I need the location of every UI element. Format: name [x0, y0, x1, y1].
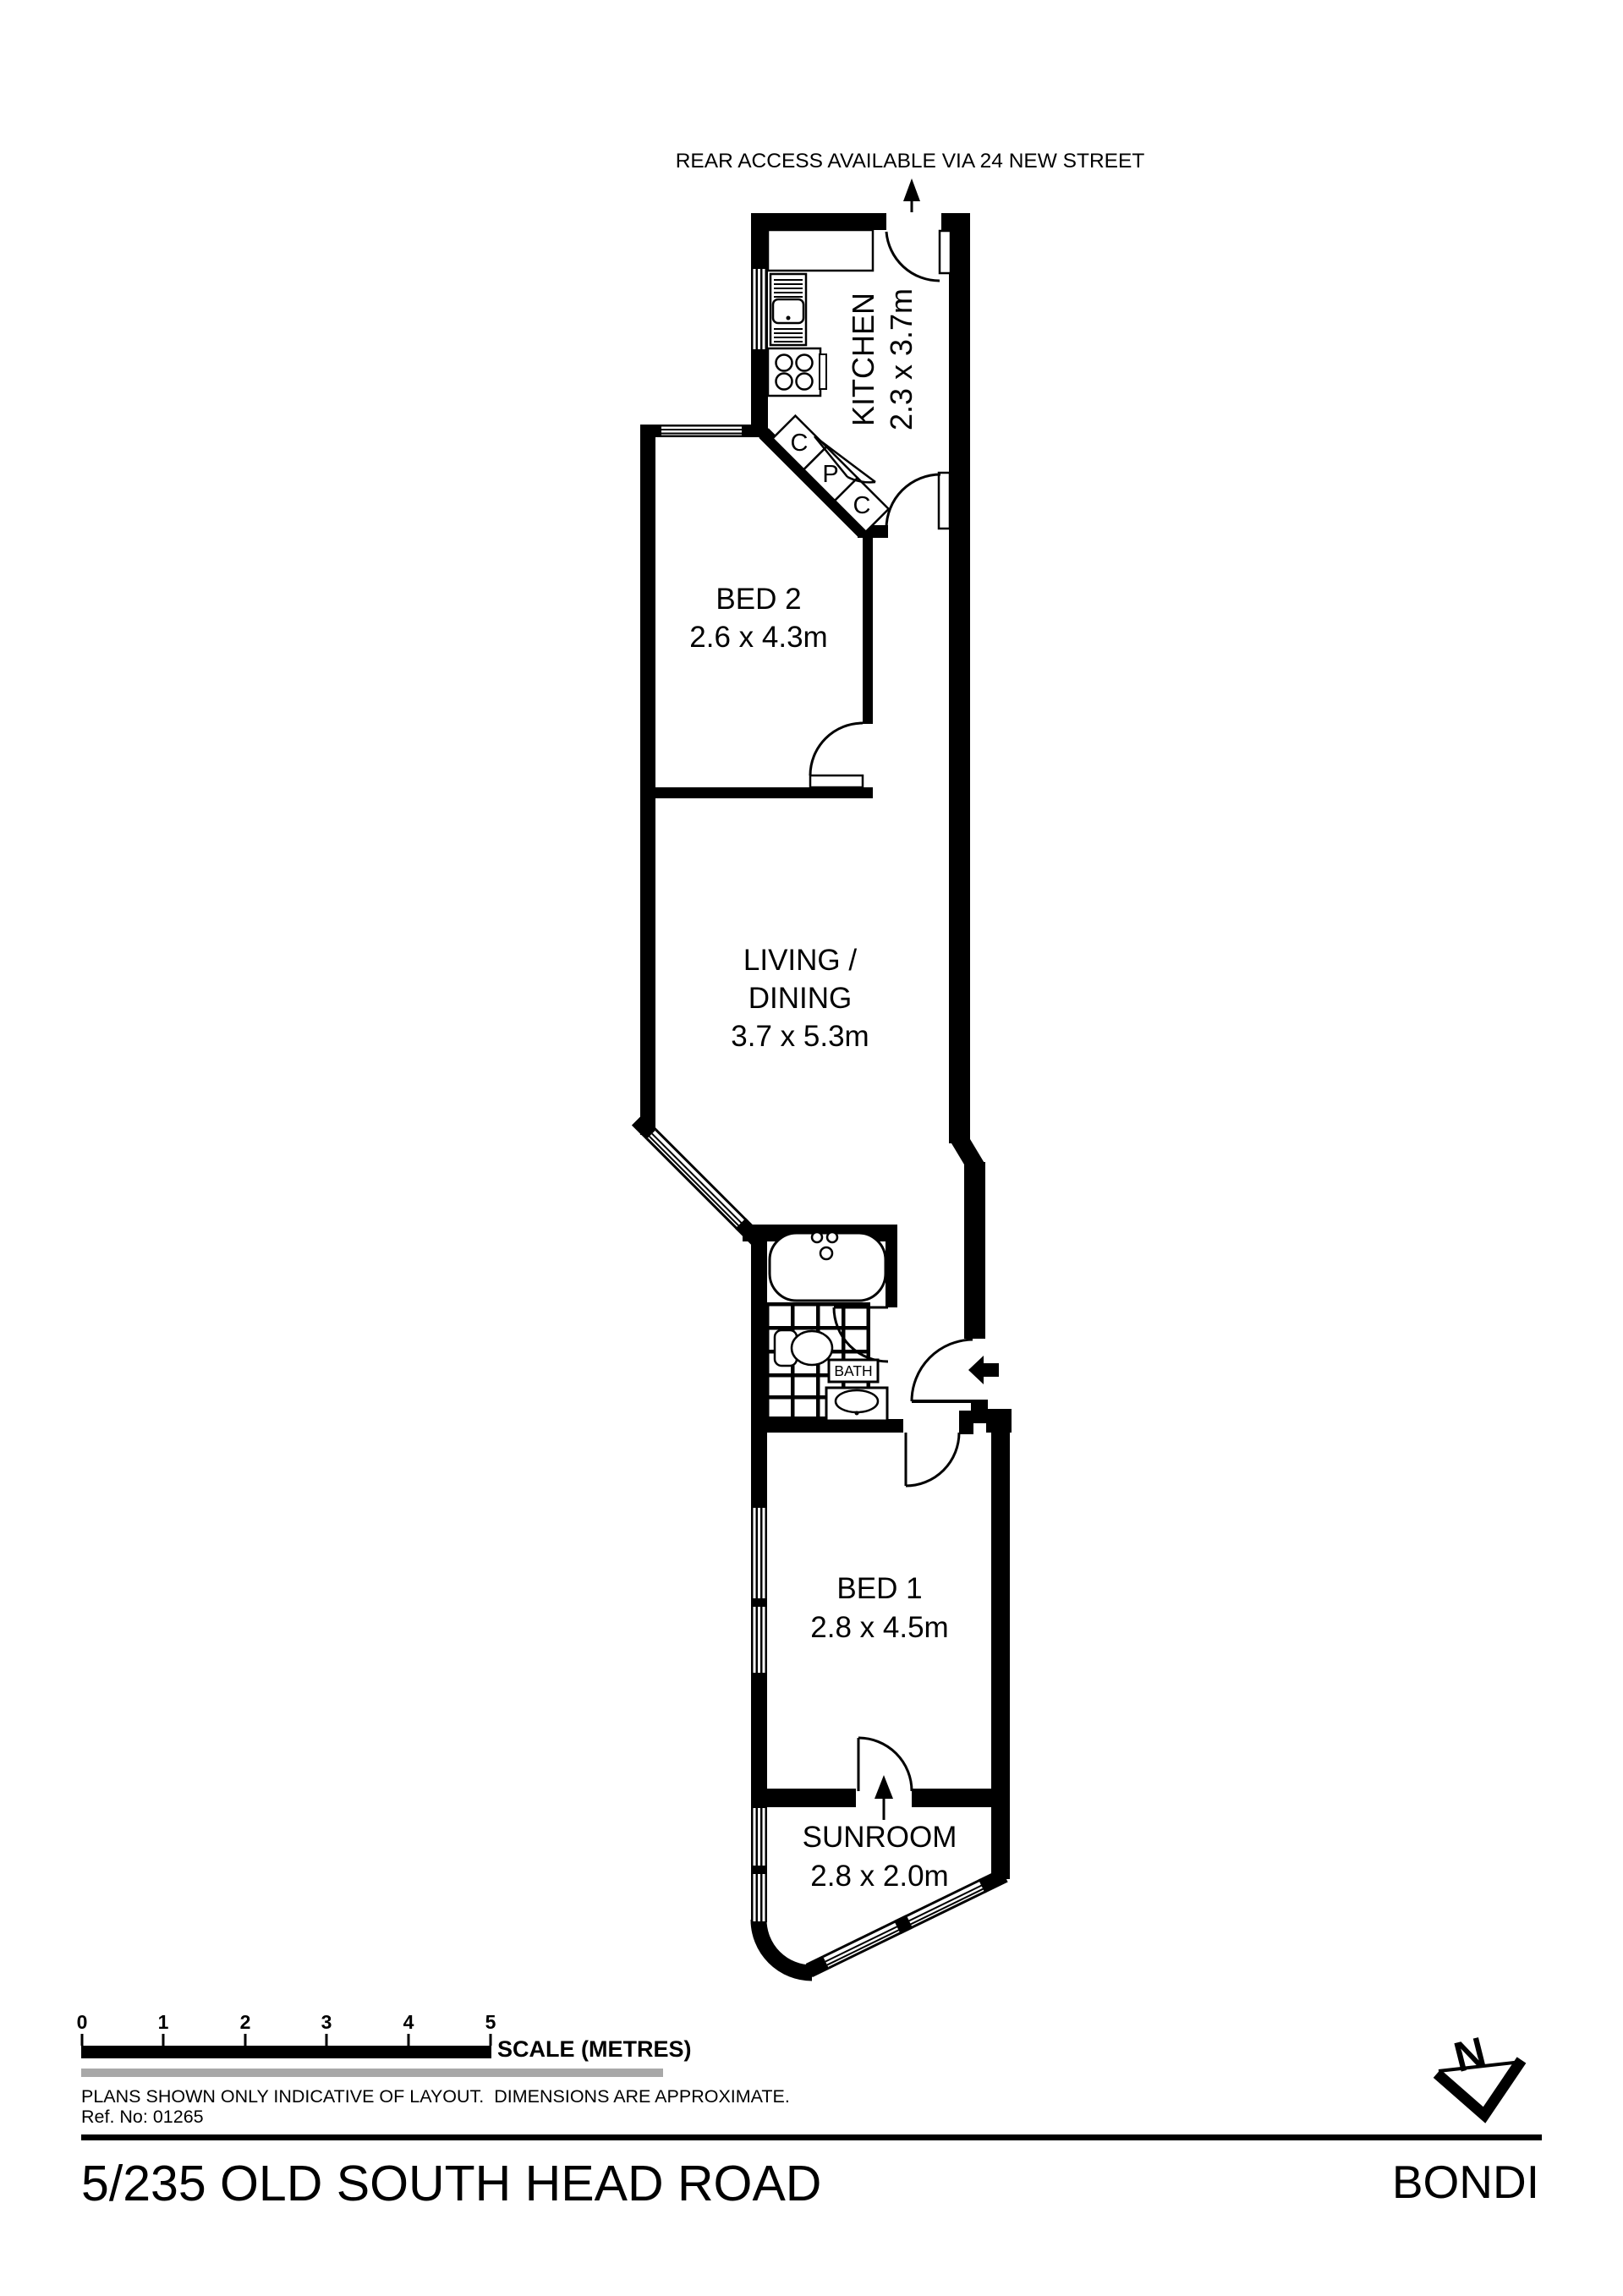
floorplan-page: C P C: [0, 0, 1623, 2296]
stove: [768, 348, 826, 396]
street-address: 5/235 OLD SOUTH HEAD ROAD: [81, 2156, 821, 2211]
pantry-letter: P: [822, 461, 838, 488]
burner: [797, 374, 813, 390]
bed2-dims: 2.6 x 4.3m: [689, 621, 827, 654]
burner: [797, 355, 813, 371]
scale-tick-0: 0: [77, 2011, 88, 2033]
bathtub: [770, 1232, 886, 1301]
sink-drain: [787, 316, 791, 321]
bed2-right-wall: [863, 533, 873, 724]
entry-door: [912, 1340, 973, 1401]
bed1-right-wall: [991, 1429, 1010, 1807]
right-boundary-wall-lower: [964, 1162, 985, 1339]
sunroom-dims: 2.8 x 2.0m: [810, 1860, 948, 1893]
burner: [776, 355, 792, 371]
tap: [827, 1232, 837, 1242]
sunroom-right-wall: [991, 1807, 1010, 1879]
living-name-line2: DINING: [748, 982, 853, 1015]
scale-tick-3: 3: [321, 2011, 332, 2033]
rear-access-arrow: [903, 178, 920, 212]
entry-arrow: [968, 1356, 999, 1384]
bed2-top-window: [661, 425, 742, 437]
bed1-bottom-wall-right: [912, 1789, 1010, 1807]
bed1-left-window-1: [751, 1508, 767, 1598]
bed1-dims: 2.8 x 4.5m: [810, 1611, 948, 1644]
kitchen-name: KITCHEN: [846, 293, 880, 426]
closets: C P C: [773, 416, 889, 532]
sunroom-arrow: [875, 1775, 893, 1820]
bed2-name: BED 2: [716, 583, 801, 616]
bath-right-wall: [886, 1225, 897, 1307]
floorplan-drawing: C P C: [0, 0, 1623, 2296]
toilet: [775, 1330, 832, 1366]
living-dims: 3.7 x 5.3m: [731, 1020, 869, 1053]
right-wall-jog: [949, 1139, 985, 1164]
bath-label-box: BATH: [829, 1360, 878, 1382]
sunroom-rounded-corner-wall: [759, 1920, 812, 1973]
scale-tick-4: 4: [403, 2011, 414, 2033]
kitchen-counter: [768, 230, 873, 271]
bed1-bottom-wall-left: [751, 1789, 856, 1807]
sunroom-name: SUNROOM: [803, 1821, 957, 1854]
bed1-door: [906, 1433, 959, 1486]
right-boundary-wall-upper: [949, 213, 970, 1143]
bed2-living-wall: [640, 787, 873, 798]
rear-access-note: REAR ACCESS AVAILABLE VIA 24 NEW STREET: [676, 150, 1145, 173]
closet-letter-1: C: [791, 430, 809, 457]
north-compass: N: [1437, 2028, 1522, 2115]
north-letter: N: [1450, 2028, 1491, 2081]
stove-handle: [820, 354, 826, 389]
scale-bar: 0 1 2 3 4 5 SCALE (METRES): [77, 2011, 692, 2077]
bath-label: BATH: [834, 1362, 872, 1379]
scale-bar-black: [81, 2046, 491, 2058]
room-labels: REAR ACCESS AVAILABLE VIA 24 NEW STREET …: [676, 150, 1145, 1893]
entry-stub: [971, 1400, 988, 1423]
bed2-door: [810, 723, 863, 787]
kitchen-sink: [770, 274, 806, 345]
bed1-left-window-2: [751, 1607, 767, 1673]
gray-divider-bar: [81, 2069, 663, 2077]
scale-bar-label: SCALE (METRES): [497, 2036, 692, 2062]
rear-access-door: [886, 231, 951, 281]
scale-tick-2: 2: [240, 2011, 251, 2033]
kitchen-top-wall: [751, 213, 886, 230]
tap: [812, 1232, 822, 1242]
suburb-name: BONDI: [1392, 2156, 1539, 2208]
scale-tick-5: 5: [485, 2011, 496, 2033]
closet-letter-2: C: [853, 492, 871, 519]
burner: [776, 374, 792, 390]
ref-number: Ref. No: 01265: [81, 2107, 204, 2127]
basin-drain: [855, 1411, 859, 1416]
tap: [820, 1247, 832, 1259]
bathroom-fixtures: BATH: [765, 1232, 887, 1421]
kitchen-left-window: [751, 269, 767, 349]
scale-tick-1: 1: [158, 2011, 169, 2033]
footer: PLANS SHOWN ONLY INDICATIVE OF LAYOUT. D…: [81, 2086, 1542, 2211]
disclaimer-text: PLANS SHOWN ONLY INDICATIVE OF LAYOUT. D…: [81, 2086, 790, 2107]
sunroom-left-window-2: [751, 1874, 767, 1921]
basin: [826, 1388, 887, 1421]
living-name-line1: LIVING /: [743, 944, 857, 977]
sunroom-left-window-1: [751, 1808, 767, 1866]
living-diagonal-window: [632, 1115, 766, 1249]
entry-corner-block: [986, 1409, 1012, 1433]
kitchen-hall-door: [886, 473, 950, 529]
left-boundary-wall-upper: [640, 425, 655, 1135]
bed1-name: BED 1: [836, 1572, 922, 1605]
kitchen-dims: 2.3 x 3.7m: [884, 288, 918, 430]
footer-rule: [81, 2134, 1542, 2140]
